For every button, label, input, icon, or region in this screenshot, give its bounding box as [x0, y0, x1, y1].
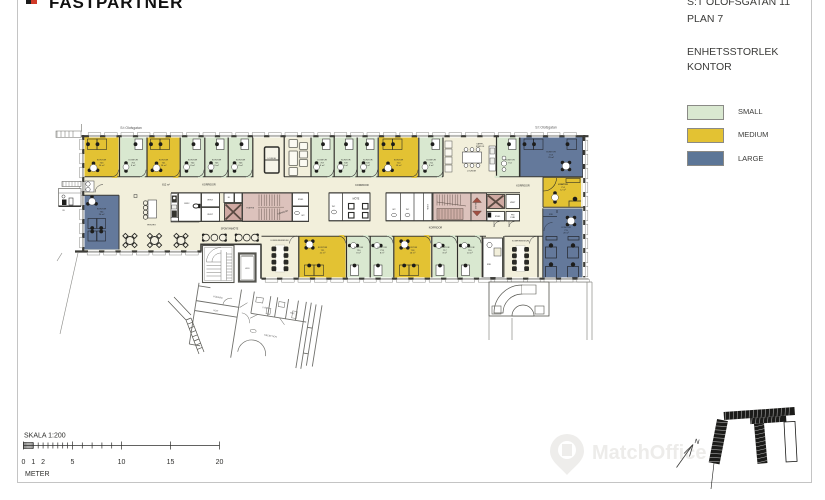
- svg-text:KONTOR: KONTOR: [505, 160, 515, 162]
- svg-text:KONTOR: KONTOR: [363, 160, 373, 162]
- svg-text:S:t Olofsgatan: S:t Olofsgatan: [120, 126, 142, 130]
- svg-text:VENT: VENT: [207, 214, 213, 216]
- svg-text:KONTOR: KONTOR: [465, 247, 475, 249]
- svg-text:VENT: VENT: [428, 204, 430, 210]
- svg-text:SPONTANMÖTE: SPONTANMÖTE: [221, 228, 239, 231]
- svg-text:KONTOR: KONTOR: [558, 184, 568, 186]
- svg-text:RWC: RWC: [184, 203, 190, 205]
- svg-text:WC: WC: [392, 209, 396, 211]
- svg-text:STÄD: STÄD: [262, 306, 268, 310]
- svg-text:KONTOR: KONTOR: [408, 247, 418, 249]
- svg-text:KORRIDOR: KORRIDOR: [429, 226, 443, 229]
- svg-text:LOUNGE: LOUNGE: [268, 158, 277, 160]
- svg-text:KONTOR: KONTOR: [377, 247, 387, 249]
- svg-text:VENT: VENT: [213, 310, 219, 313]
- svg-text:KONTOR: KONTOR: [129, 160, 139, 162]
- svg-text:KONTOR: KONTOR: [97, 209, 107, 211]
- svg-text:KONTOR: KONTOR: [212, 160, 222, 162]
- svg-text:15 m²: 15 m²: [396, 164, 402, 167]
- svg-text:S:t Olofsgatan: S:t Olofsgatan: [535, 126, 557, 130]
- svg-text:8 m²: 8 m²: [356, 252, 361, 255]
- svg-text:20 m²: 20 m²: [99, 213, 105, 216]
- svg-text:8 m²: 8 m²: [344, 164, 349, 167]
- svg-text:KONTOR: KONTOR: [318, 247, 328, 249]
- svg-text:METER: METER: [25, 471, 50, 478]
- svg-text:FÖRRÅD: FÖRRÅD: [213, 295, 223, 299]
- svg-text:TRAPPA: TRAPPA: [246, 207, 255, 210]
- svg-text:WC: WC: [332, 206, 336, 208]
- svg-text:STÄD: STÄD: [510, 216, 515, 219]
- svg-text:KONTOR: KONTOR: [341, 160, 351, 162]
- svg-text:23 m²: 23 m²: [548, 156, 554, 159]
- svg-text:16 m²: 16 m²: [410, 252, 416, 255]
- svg-text:KONTOR: KONTOR: [546, 152, 556, 154]
- svg-text:KONFERENSRUM: KONFERENSRUM: [271, 240, 289, 242]
- svg-text:STÄD: STÄD: [495, 215, 501, 218]
- svg-text:KORRIDOR: KORRIDOR: [202, 184, 216, 187]
- svg-text:812 m²: 812 m²: [162, 184, 170, 187]
- svg-text:20: 20: [216, 459, 224, 466]
- svg-text:10 m²: 10 m²: [161, 164, 167, 167]
- svg-text:21 m²: 21 m²: [320, 252, 326, 255]
- svg-text:26: 26: [62, 210, 65, 212]
- svg-text:8 m²: 8 m²: [380, 252, 385, 255]
- svg-text:VENT: VENT: [207, 200, 213, 202]
- svg-text:1: 1: [31, 459, 35, 466]
- svg-text:15: 15: [167, 459, 175, 466]
- svg-text:8 m²: 8 m²: [238, 164, 243, 167]
- svg-text:RWC: RWC: [290, 312, 296, 315]
- svg-text:WC: WC: [301, 215, 305, 217]
- svg-text:MatchOffice: MatchOffice: [592, 442, 706, 464]
- svg-text:2: 2: [41, 459, 45, 466]
- svg-text:FRD: FRD: [487, 264, 492, 266]
- svg-text:0: 0: [22, 459, 26, 466]
- svg-text:KONTOR: KONTOR: [440, 247, 450, 249]
- svg-text:8 m²: 8 m²: [429, 164, 434, 167]
- svg-text:8 m²: 8 m²: [131, 164, 136, 167]
- svg-text:10: 10: [118, 459, 126, 466]
- svg-text:KORRIDOR: KORRIDOR: [516, 184, 530, 187]
- svg-text:8 m²: 8 m²: [320, 164, 325, 167]
- svg-text:10 m²: 10 m²: [99, 164, 105, 167]
- svg-text:10 m²: 10 m²: [467, 252, 473, 255]
- svg-text:KONTOR: KONTOR: [427, 160, 437, 162]
- svg-text:KONTOR: KONTOR: [159, 160, 169, 162]
- svg-text:KORRIDOR: KORRIDOR: [355, 184, 369, 187]
- svg-text:KONTOR: KONTOR: [561, 227, 571, 229]
- svg-text:VENT: VENT: [510, 202, 516, 204]
- svg-text:5: 5: [71, 459, 75, 466]
- svg-text:ENTRÉ: ENTRÉ: [475, 202, 478, 209]
- svg-text:SKALA 1:200: SKALA 1:200: [24, 433, 66, 440]
- svg-text:KONTOR: KONTOR: [354, 247, 364, 249]
- svg-text:8 m²: 8 m²: [366, 164, 371, 167]
- svg-text:MÖTE: MÖTE: [353, 198, 360, 201]
- svg-text:8 m²: 8 m²: [214, 164, 219, 167]
- svg-text:KONTOR: KONTOR: [97, 160, 107, 162]
- svg-text:8 m²: 8 m²: [443, 252, 448, 255]
- svg-text:12 m²: 12 m²: [560, 189, 566, 192]
- svg-text:KONTOR: KONTOR: [236, 160, 246, 162]
- svg-text:FRD: FRD: [549, 214, 554, 216]
- svg-text:HISS: HISS: [245, 268, 250, 270]
- svg-text:STÄD: STÄD: [298, 198, 304, 201]
- svg-text:RECEPTION: RECEPTION: [264, 335, 277, 339]
- svg-text:KONTOR: KONTOR: [188, 160, 198, 162]
- svg-text:KONTOR: KONTOR: [318, 160, 328, 162]
- svg-text:WC: WC: [406, 209, 410, 211]
- svg-text:KONTOR: KONTOR: [394, 160, 404, 162]
- svg-text:KONFERENSRUM: KONFERENSRUM: [512, 240, 529, 242]
- svg-text:8 m²: 8 m²: [190, 164, 195, 167]
- svg-text:PENTRY: PENTRY: [147, 225, 156, 227]
- svg-text:28 m²: 28 m²: [563, 232, 569, 235]
- svg-text:LOUNGE: LOUNGE: [467, 171, 477, 173]
